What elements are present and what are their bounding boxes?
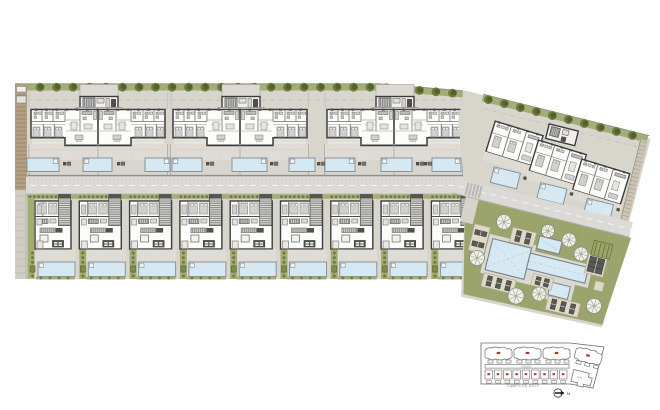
svg-text:AVENIDA: AVENIDA [521,366,532,369]
svg-text:N: N [567,391,570,396]
svg-text:CAMPO DE GOLF: CAMPO DE GOLF [507,384,539,388]
